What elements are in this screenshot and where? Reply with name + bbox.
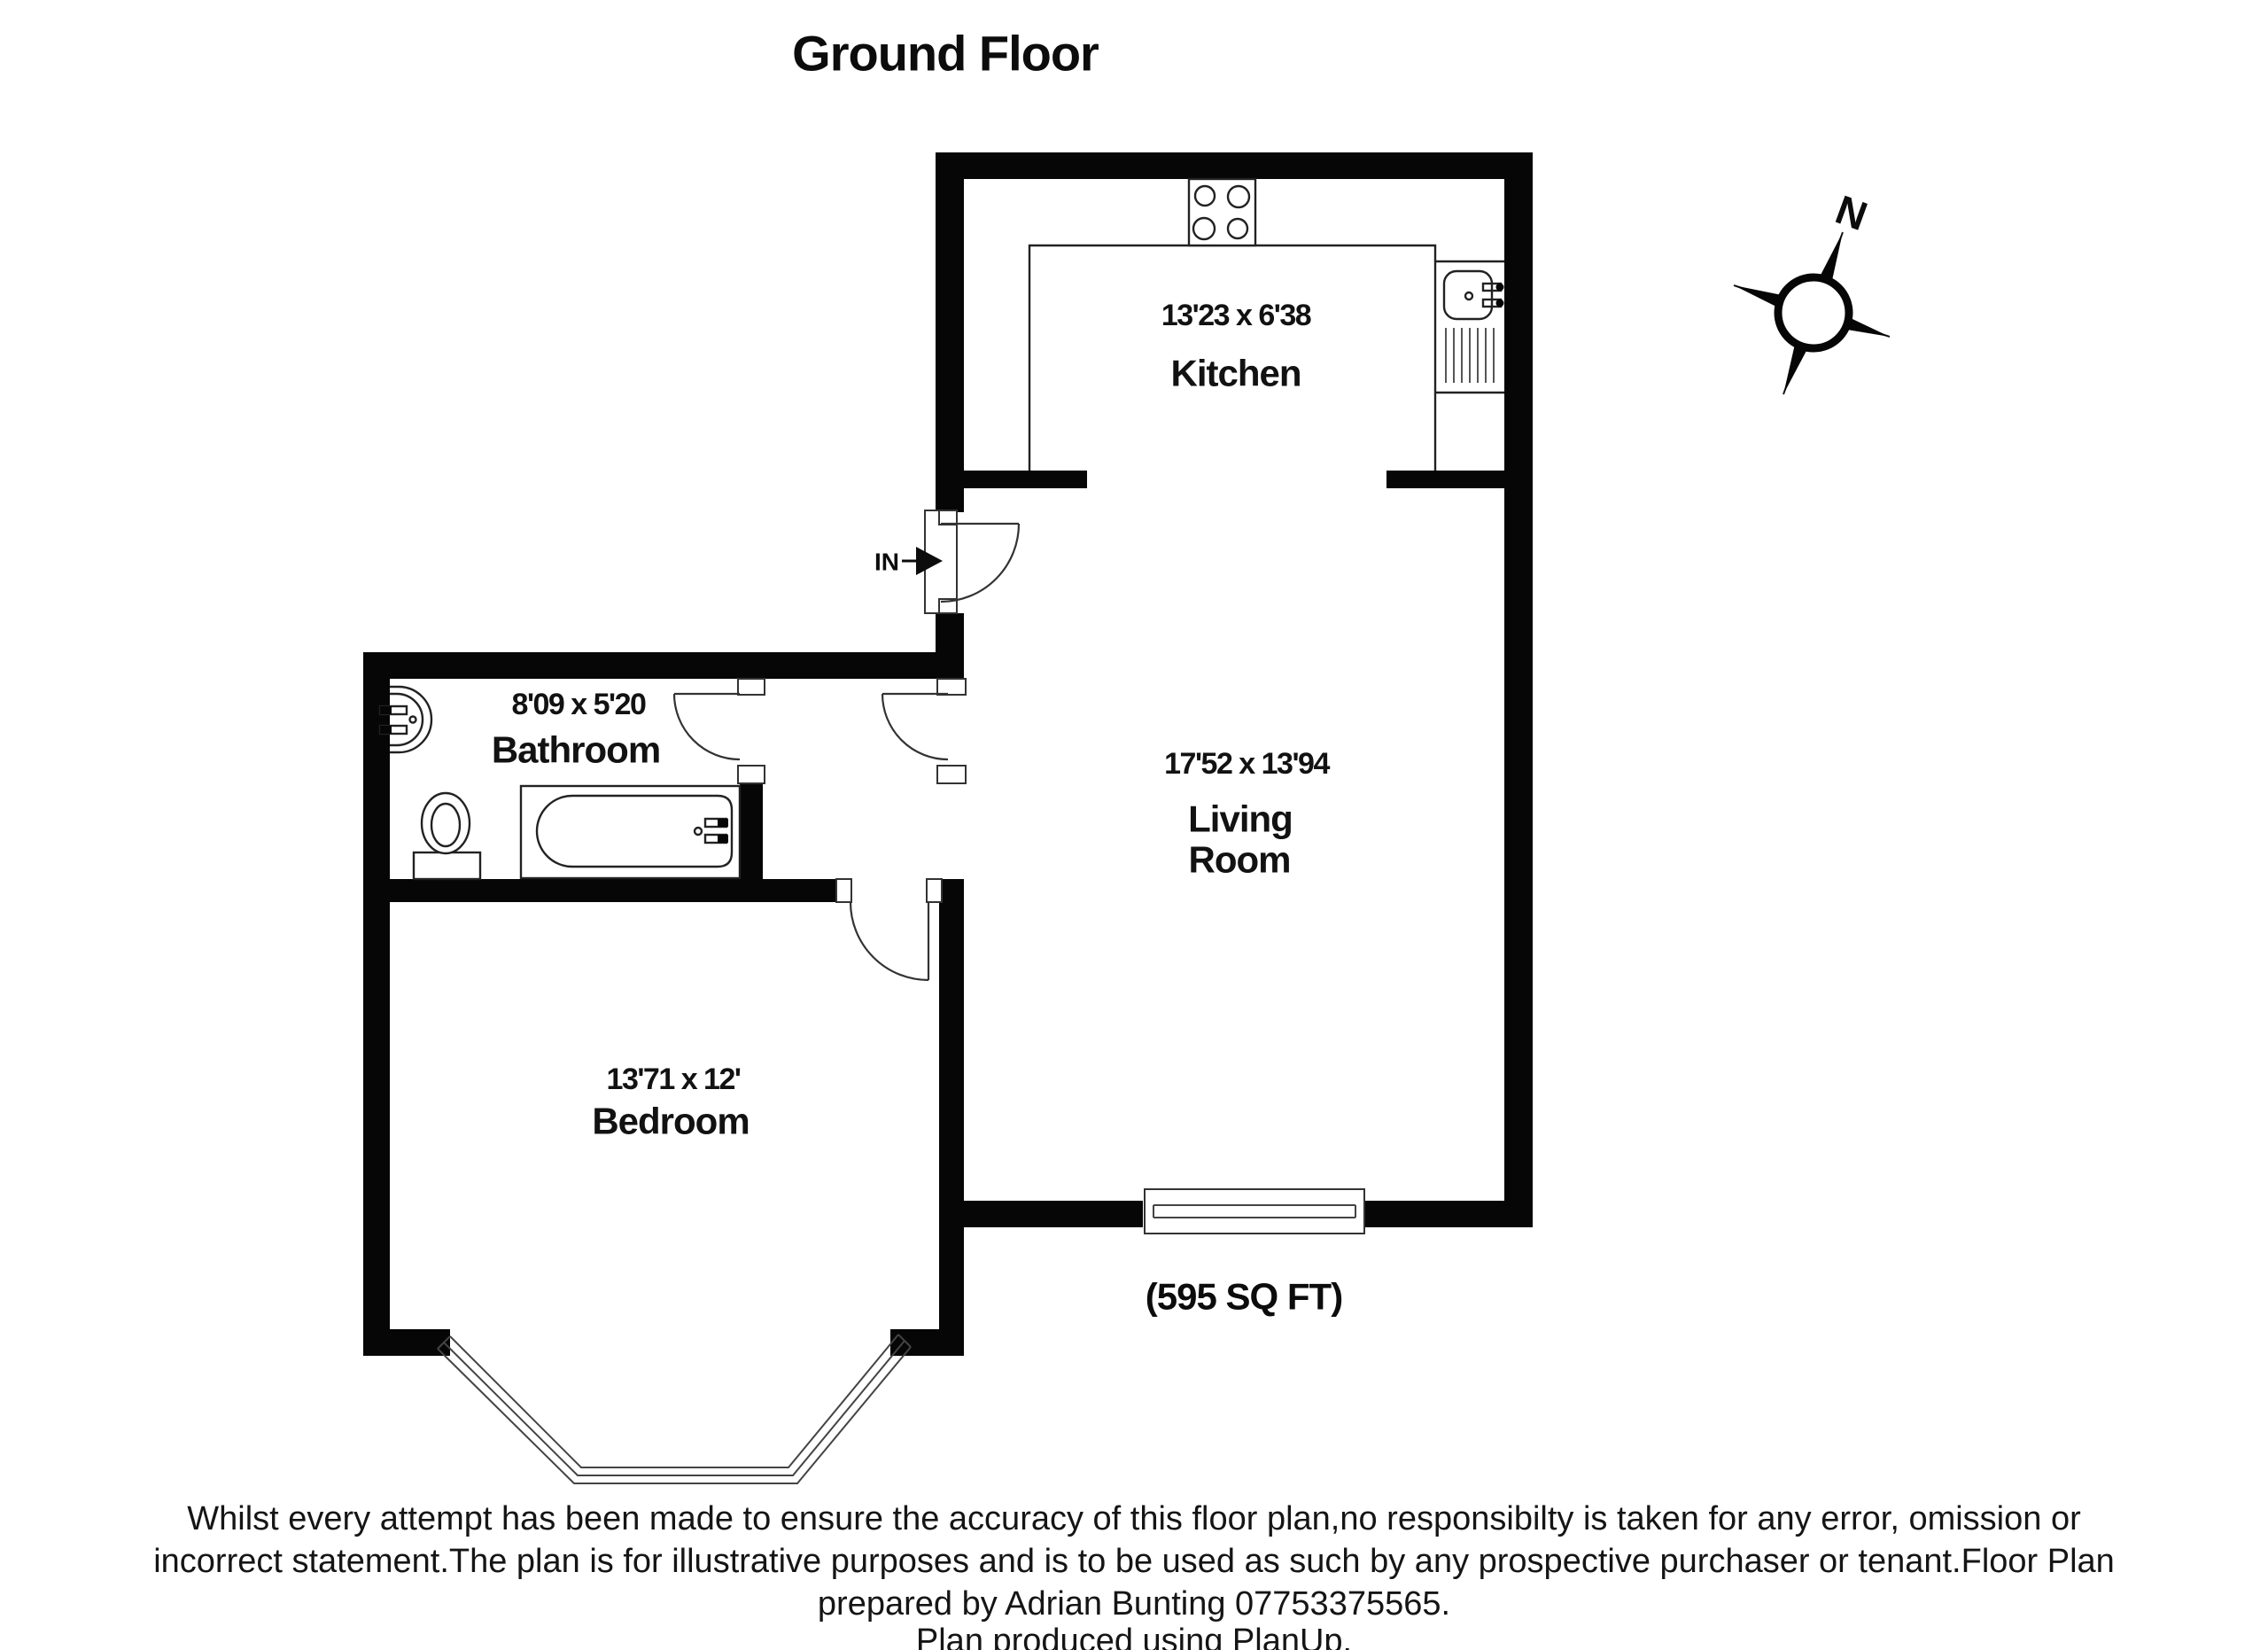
wall-west — [363, 652, 390, 1356]
kitchen-sink-icon — [1435, 261, 1504, 393]
wall-bathroom-partition — [740, 783, 763, 879]
wall-bathroom-bedroom — [363, 879, 837, 902]
disclaimer-line-1: Whilst every attempt has been made to en… — [187, 1500, 2081, 1537]
bathroom-door — [674, 679, 765, 783]
window-frame — [1145, 1189, 1364, 1234]
wall-bedroom-living — [939, 879, 964, 1356]
toilet-cistern — [414, 852, 480, 879]
compass-north-label: N — [1829, 186, 1873, 239]
entrance-door-jamb-top — [939, 510, 957, 525]
entrance-label: IN — [874, 549, 899, 576]
living-door-jamb-bottom — [937, 766, 966, 783]
wall-kitchen-top — [936, 152, 1533, 179]
bedroom-door-jamb-right — [927, 879, 942, 902]
wall-bedroom-bottom-left-stub — [363, 1329, 450, 1356]
living-door-swing — [882, 694, 948, 759]
bedroom-door-jamb-left — [836, 879, 851, 902]
toilet-icon — [414, 793, 480, 879]
living-door-jamb-top — [937, 679, 966, 695]
compass-icon: N — [1734, 186, 1890, 394]
kitchen-dimensions: 13'23 x 6'38 — [1161, 299, 1311, 332]
wall-living-bottom-left — [939, 1201, 1143, 1227]
bay-window — [438, 1335, 911, 1483]
basin-tap-head — [380, 706, 392, 714]
wall-right — [1504, 152, 1533, 1227]
wall-kitchen-bottom-left-stub — [964, 471, 1087, 488]
living-room-label-line2: Room — [1189, 839, 1291, 881]
draining-board — [1446, 328, 1494, 383]
bathroom-door-jamb-bottom — [738, 766, 765, 783]
kitchen-label: Kitchen — [1170, 353, 1301, 394]
basin-tap-head — [380, 726, 392, 734]
bathroom-door-swing — [674, 694, 740, 759]
entrance-door: IN — [874, 510, 1019, 613]
floor-area-label: (595 SQ FT) — [1146, 1276, 1342, 1318]
toilet-seat-inner — [431, 804, 460, 846]
wall-left-upper — [936, 152, 964, 512]
sink-tap-head — [1496, 300, 1504, 307]
bathtub-tap-head — [718, 819, 728, 827]
disclaimer-line-2: incorrect statement.The plan is for illu… — [153, 1543, 2115, 1580]
disclaimer-line-3: prepared by Adrian Bunting 07753375565. — [818, 1585, 1450, 1623]
bathroom-dimensions: 8'09 x 5'20 — [512, 688, 647, 721]
bedroom-door — [836, 879, 942, 980]
bedroom-label: Bedroom — [592, 1101, 749, 1142]
living-room-label-line1: Living — [1188, 798, 1293, 840]
living-room-dimensions: 17'52 x 13'94 — [1164, 747, 1330, 781]
footer-disclaimer: Whilst every attempt has been made to en… — [153, 1500, 2115, 1650]
living-room-door — [882, 679, 966, 783]
bedroom-door-swing — [850, 902, 928, 980]
living-room-window — [1145, 1189, 1364, 1234]
bathroom-door-jamb-top — [738, 679, 765, 695]
disclaimer-line-4: Plan produced using PlanUp. — [916, 1623, 1352, 1650]
wall-bedroom-bottom-right-stub — [890, 1329, 964, 1356]
bathroom-label: Bathroom — [492, 729, 660, 771]
sink-tap-head — [1496, 284, 1504, 292]
wall-hall-top — [363, 652, 964, 679]
wall-living-bottom-right — [1364, 1201, 1533, 1227]
compass-ring — [1778, 277, 1849, 348]
sink-bowl — [1444, 271, 1492, 319]
bathtub-tap-head — [718, 835, 728, 843]
floor-plan: Ground Floor IN — [0, 0, 2268, 1650]
page-title: Ground Floor — [792, 26, 1099, 82]
bathtub-icon — [521, 786, 740, 878]
bedroom-dimensions: 13'71 x 12' — [607, 1062, 741, 1096]
wall-kitchen-bottom-right-stub — [1386, 471, 1504, 488]
